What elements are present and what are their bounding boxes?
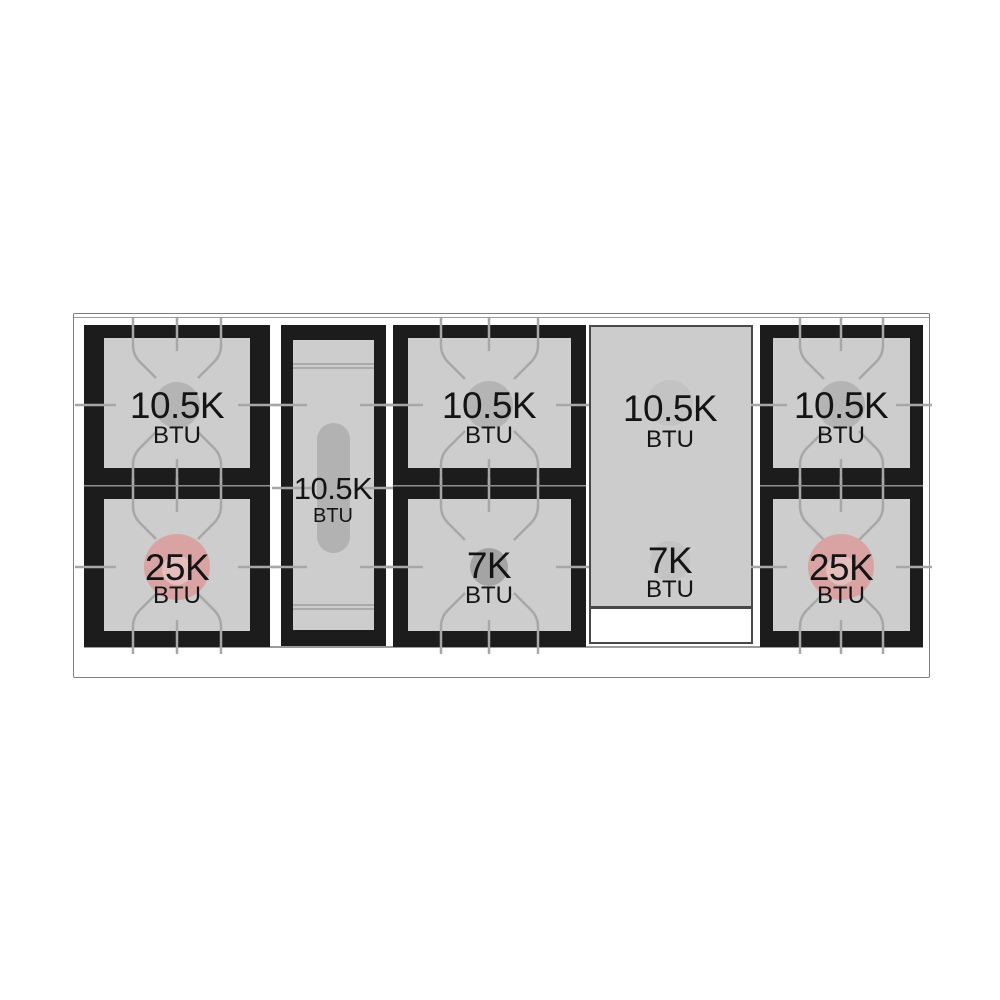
burner-middle-top: 10.5K BTU bbox=[384, 318, 595, 492]
cooktop-back-edge-line bbox=[74, 317, 929, 319]
burner-right-top: 10.5K BTU bbox=[751, 318, 932, 492]
burner-unit-label: BTU bbox=[313, 505, 353, 527]
burner-power-label: 7K bbox=[467, 545, 512, 586]
burner-power-label: 10.5K bbox=[294, 471, 373, 506]
burner-unit-label: BTU bbox=[465, 582, 513, 609]
cooktop-diagram: 10.5K BTU 25K BTU 10.5K BTU bbox=[0, 0, 1000, 1000]
burner-left-bottom: 25K BTU bbox=[75, 478, 279, 654]
burner-unit-label: BTU bbox=[153, 582, 201, 609]
burner-left-top: 10.5K BTU bbox=[75, 318, 279, 492]
burner-middle-bottom: 7K BTU bbox=[384, 478, 595, 654]
burner-unit-label: BTU bbox=[817, 582, 865, 609]
burner-power-label: 10.5K bbox=[794, 385, 889, 426]
burner-unit-label: BTU bbox=[153, 422, 201, 449]
burner-power-label: 7K bbox=[648, 540, 693, 581]
burner-right-bottom: 25K BTU bbox=[751, 478, 932, 654]
griddle-zone: 10.5K BTU 7K BTU bbox=[590, 326, 752, 643]
burner-power-label: 10.5K bbox=[442, 385, 537, 426]
module-left-burners: 10.5K BTU 25K BTU bbox=[84, 325, 270, 647]
burner-unit-label: BTU bbox=[817, 422, 865, 449]
burner-power-label: 10.5K bbox=[623, 388, 718, 429]
burner-unit-label: BTU bbox=[465, 422, 513, 449]
module-right-burners: 10.5K BTU 25K BTU bbox=[760, 325, 923, 647]
burner-center-oval: 10.5K BTU bbox=[272, 325, 395, 646]
module-middle-burners: 10.5K BTU 7K BTU bbox=[393, 325, 586, 647]
burner-unit-label: BTU bbox=[646, 426, 694, 453]
burner-power-label: 10.5K bbox=[130, 385, 225, 426]
module-griddle: 10.5K BTU 7K BTU bbox=[589, 325, 753, 646]
griddle-front-panel bbox=[590, 608, 752, 643]
burner-unit-label: BTU bbox=[646, 576, 694, 603]
module-oval-burner: 10.5K BTU bbox=[281, 325, 386, 646]
